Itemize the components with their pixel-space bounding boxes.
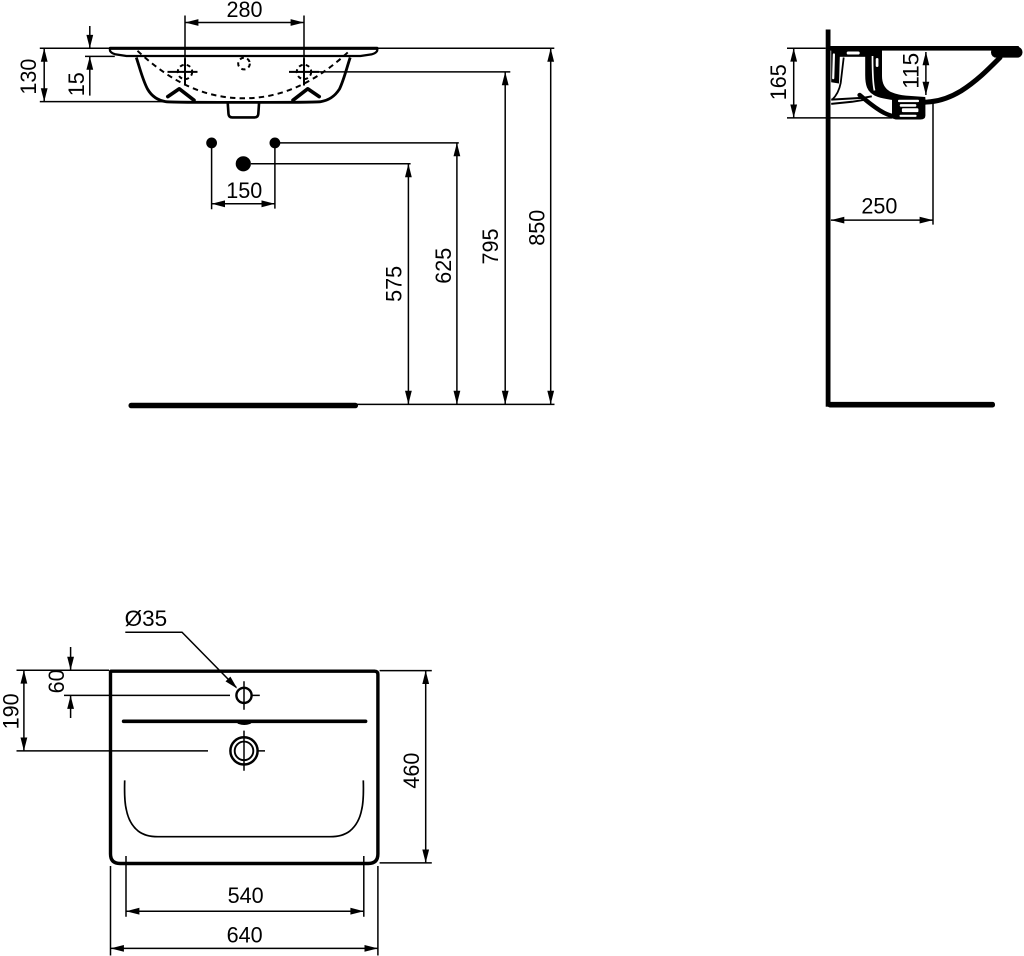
svg-text:280: 280 — [227, 0, 263, 22]
svg-text:575: 575 — [382, 266, 407, 302]
svg-text:460: 460 — [399, 753, 424, 789]
svg-text:150: 150 — [226, 178, 262, 203]
svg-text:115: 115 — [898, 53, 923, 89]
svg-text:Ø35: Ø35 — [125, 606, 168, 631]
svg-text:540: 540 — [228, 883, 264, 908]
svg-text:850: 850 — [525, 210, 550, 246]
svg-text:640: 640 — [227, 922, 263, 947]
svg-text:190: 190 — [0, 693, 24, 729]
svg-text:15: 15 — [64, 72, 89, 96]
svg-text:165: 165 — [766, 64, 791, 100]
svg-text:625: 625 — [431, 248, 456, 284]
svg-text:130: 130 — [16, 59, 41, 95]
svg-text:250: 250 — [861, 193, 897, 218]
svg-text:795: 795 — [478, 229, 503, 265]
svg-text:60: 60 — [44, 669, 69, 693]
